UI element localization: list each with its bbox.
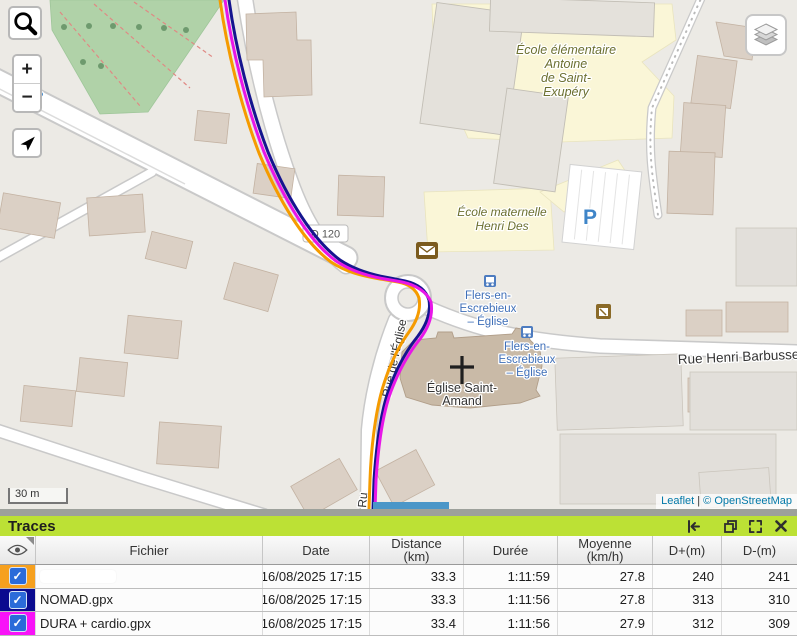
trace-checkbox[interactable]: ✓ <box>9 614 27 632</box>
column-visibility-header[interactable] <box>0 536 36 564</box>
svg-text:– Église: – Église <box>507 366 548 379</box>
trace-checkbox[interactable]: ✓ <box>9 567 27 585</box>
svg-text:Flers-en-: Flers-en- <box>465 290 511 302</box>
traces-panel-header: Traces <box>0 516 797 536</box>
search-icon <box>12 10 38 36</box>
trace-color-swatch[interactable]: ✓ <box>0 612 36 635</box>
app-window: D 120 <box>0 0 797 636</box>
trace-checkbox[interactable]: ✓ <box>9 591 27 609</box>
eye-icon <box>7 544 28 556</box>
distance-cell: 33.3 <box>370 589 464 612</box>
column-duree-header[interactable]: Durée <box>464 536 558 564</box>
attribution-separator: | <box>697 495 700 507</box>
trace-color-swatch[interactable]: ✓ <box>0 565 36 588</box>
map-tiles: D 120 <box>0 0 797 509</box>
map-bottom-scrollbar[interactable] <box>373 502 449 509</box>
panel-toolbar <box>686 519 788 534</box>
close-icon <box>775 520 787 532</box>
elevation-loss-cell: 241 <box>722 565 797 588</box>
date-cell: 16/08/2025 17:15 <box>263 565 370 588</box>
average-cell: 27.9 <box>558 612 653 635</box>
sort-indicator <box>26 537 34 545</box>
zoom-out-button[interactable]: − <box>14 83 40 111</box>
table-row: ✓ 16/08/2025 17:15 33.3 1:11:59 27.8 240… <box>0 565 797 589</box>
bus-stop-icon <box>484 275 496 287</box>
expand-icon <box>749 520 762 533</box>
leaflet-link[interactable]: Leaflet <box>661 495 694 507</box>
elevation-loss-cell: 309 <box>722 612 797 635</box>
table-header-row: Fichier Date Distance(km) Durée Moyenne(… <box>0 536 797 565</box>
svg-text:de Saint-: de Saint- <box>541 71 591 85</box>
svg-text:Escrebieux: Escrebieux <box>499 354 556 366</box>
bus-stop-icon <box>521 326 533 338</box>
column-moyenne-header[interactable]: Moyenne(km/h) <box>558 536 653 564</box>
svg-text:Église Saint-: Église Saint- <box>427 380 497 395</box>
bus-stop-label: Flers-en- Escrebieux – Église <box>499 341 556 379</box>
post-box-icon <box>416 242 438 259</box>
distance-cell: 33.4 <box>370 612 464 635</box>
svg-text:Henri Des: Henri Des <box>475 219 528 233</box>
panel-divider <box>0 509 797 516</box>
column-distance-header[interactable]: Distance(km) <box>370 536 464 564</box>
duration-cell: 1:11:59 <box>464 565 558 588</box>
elevation-loss-cell: 310 <box>722 589 797 612</box>
elevation-gain-cell: 313 <box>653 589 722 612</box>
dock-left-icon <box>687 520 701 533</box>
svg-text:Amand: Amand <box>442 394 482 408</box>
svg-text:Exupéry: Exupéry <box>543 85 590 99</box>
file-name-blank <box>40 570 116 583</box>
column-dminus-header[interactable]: D-(m) <box>722 536 797 564</box>
restore-panel-button[interactable] <box>723 519 738 534</box>
zoom-in-button[interactable]: + <box>14 56 40 83</box>
zoom-control: + − <box>12 54 42 113</box>
duration-cell: 1:11:56 <box>464 589 558 612</box>
map-attribution: Leaflet | © OpenStreetMap <box>656 494 797 509</box>
map-scale: 30 m <box>8 488 68 504</box>
column-dplus-header[interactable]: D+(m) <box>653 536 722 564</box>
column-date-header[interactable]: Date <box>263 536 370 564</box>
table-row: ✓ DURA + cardio.gpx 16/08/2025 17:15 33.… <box>0 612 797 636</box>
layers-button[interactable] <box>745 14 787 56</box>
average-cell: 27.8 <box>558 589 653 612</box>
date-cell: 16/08/2025 17:15 <box>263 612 370 635</box>
average-cell: 27.8 <box>558 565 653 588</box>
file-name-cell[interactable] <box>36 565 263 588</box>
file-name-cell[interactable]: NOMAD.gpx <box>36 589 263 612</box>
restore-window-icon <box>724 520 737 533</box>
locate-arrow-icon <box>17 133 37 153</box>
parking-lot <box>562 164 642 249</box>
traces-table: Fichier Date Distance(km) Durée Moyenne(… <box>0 536 797 636</box>
collapse-panel-button[interactable] <box>686 519 701 534</box>
panel-title: Traces <box>8 518 56 535</box>
table-row: ✓ NOMAD.gpx 16/08/2025 17:15 33.3 1:11:5… <box>0 589 797 613</box>
layers-icon <box>752 22 780 48</box>
map-canvas[interactable]: D 120 <box>0 0 797 509</box>
distance-cell: 33.3 <box>370 565 464 588</box>
file-name-cell[interactable]: DURA + cardio.gpx <box>36 612 263 635</box>
parking-label: P <box>583 206 597 229</box>
bus-stop-label: Flers-en- Escrebieux – Église <box>460 290 517 328</box>
shop-icon <box>596 304 611 319</box>
fullscreen-panel-button[interactable] <box>748 519 763 534</box>
svg-text:Antoine: Antoine <box>544 57 587 71</box>
search-button[interactable] <box>8 6 42 40</box>
svg-text:Flers-en-: Flers-en- <box>504 341 550 353</box>
elevation-gain-cell: 312 <box>653 612 722 635</box>
svg-text:École élémentaire: École élémentaire <box>516 42 616 57</box>
svg-text:École maternelle: École maternelle <box>457 204 547 219</box>
svg-text:– Église: – Église <box>468 315 509 328</box>
duration-cell: 1:11:56 <box>464 612 558 635</box>
column-fichier-header[interactable]: Fichier <box>36 536 263 564</box>
date-cell: 16/08/2025 17:15 <box>263 589 370 612</box>
elevation-gain-cell: 240 <box>653 565 722 588</box>
locate-button[interactable] <box>12 128 42 158</box>
close-panel-button[interactable] <box>773 519 788 534</box>
svg-text:Escrebieux: Escrebieux <box>460 303 517 315</box>
osm-link[interactable]: © OpenStreetMap <box>703 495 792 507</box>
trace-color-swatch[interactable]: ✓ <box>0 589 36 612</box>
